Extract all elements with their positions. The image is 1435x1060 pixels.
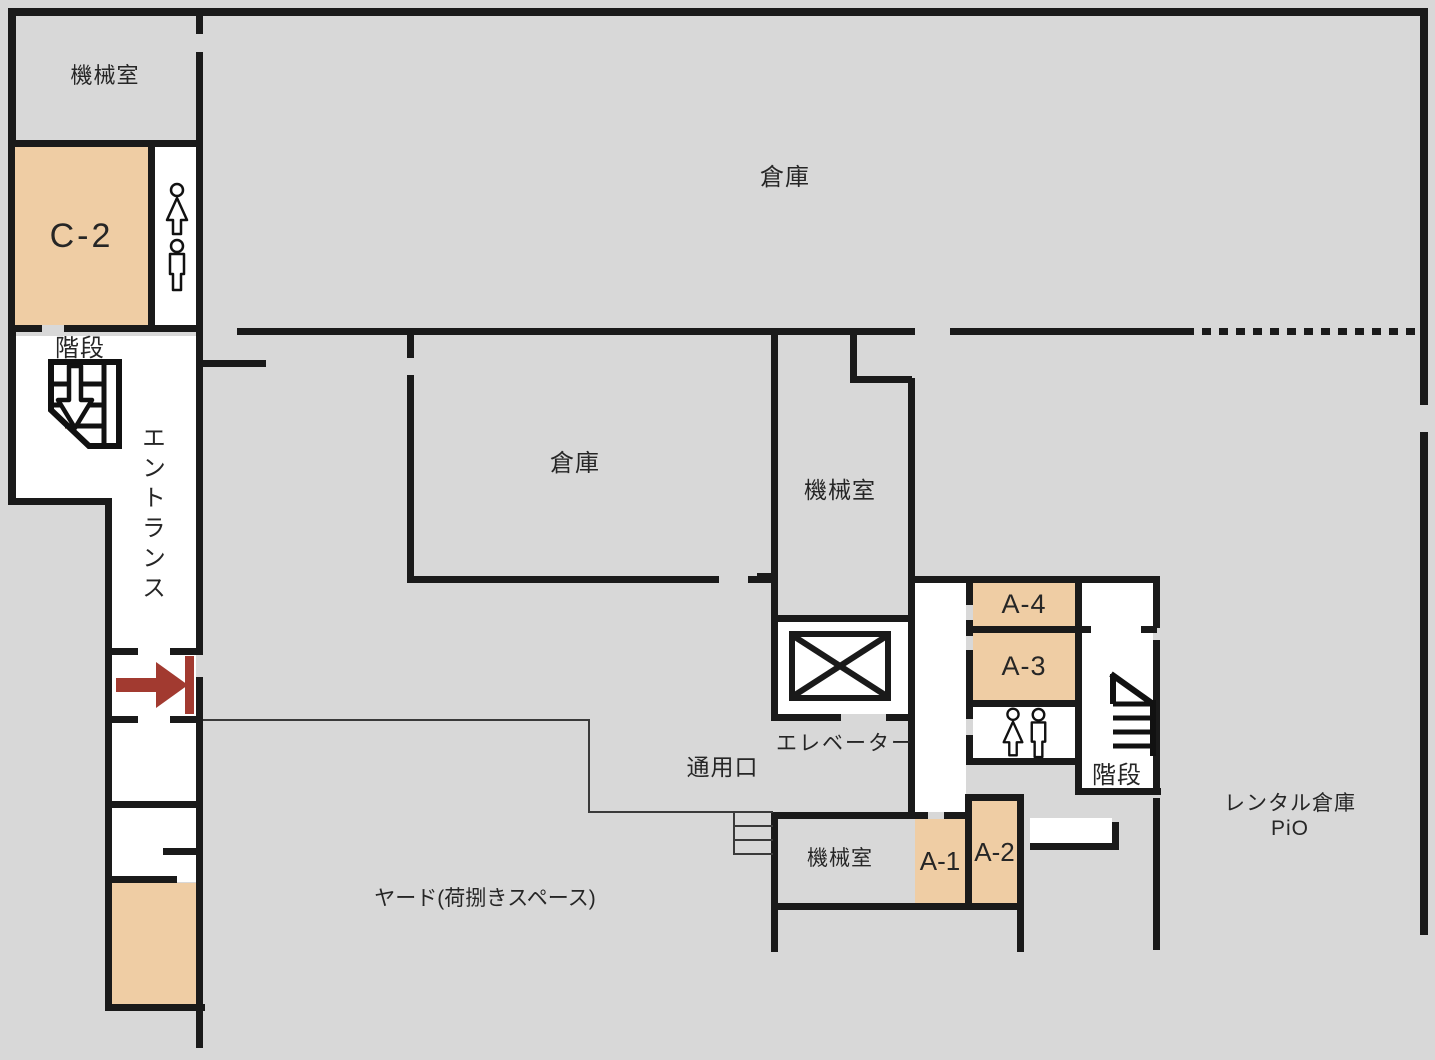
label-machine-room-top-left: 機械室 [35,58,175,90]
label-stairs-top-left: 階段 [42,332,118,358]
wall-segment [196,677,203,1048]
elevator-shaft [789,631,891,701]
wall-segment [966,626,1078,633]
wall-segment [1153,576,1160,628]
room-c2: C-2 [15,147,148,325]
label-service-entrance: 通用口 [655,750,790,780]
thin-line [588,811,736,813]
thin-line [733,839,773,841]
room-a1: A-1 [915,819,965,903]
wall-segment [1420,432,1428,935]
wall-segment [148,140,155,332]
wall-segment [8,8,1428,16]
wall-segment [105,801,112,1011]
wall-segment [886,714,910,721]
wall-segment [966,583,973,605]
wall-segment [771,903,1024,910]
wall-segment [105,716,138,723]
wall-segment [965,794,1023,801]
wall-segment [196,335,203,652]
woman-icon [999,704,1027,760]
wall-segment [237,328,915,335]
wall-segment [771,615,913,622]
wall-segment [966,650,973,706]
wall-segment [407,335,414,358]
wall-segment [153,325,198,332]
wall-segment [105,1004,205,1011]
wall-segment [1420,8,1428,405]
wall-segment [196,8,203,34]
wall-segment [771,812,778,952]
wall-segment [771,714,841,721]
wall-segment [1141,626,1157,633]
thin-line [733,825,773,827]
room-a3: A-3 [973,633,1075,700]
label-stairs-right: 階段 [1078,758,1156,786]
man-icon [163,238,191,292]
wall-segment [196,360,266,367]
floor-area [915,583,966,812]
wall-segment [965,794,972,910]
label-machine-room-bottom: 機械室 [770,842,910,872]
room-bottom-left [112,883,196,1004]
room-a2: A-2 [972,801,1017,903]
label-elevator: エレベーター [775,728,915,756]
thin-line [733,811,735,855]
wall-segment [105,876,177,883]
wall-segment [850,376,912,383]
floor-plan: C-2 A-4 A-3 A-1 A-2 [0,0,1435,1060]
wall-segment [771,618,778,721]
wall-segment [771,812,913,819]
wall-segment [1030,843,1119,850]
label-warehouse-middle: 倉庫 [505,442,645,478]
entrance-arrow-icon [114,654,198,716]
thin-line [588,719,590,813]
wall-segment [8,325,42,332]
wall-segment [1112,822,1119,848]
label-yard: ヤード(荷捌きスペース) [355,880,615,914]
wall-segment [163,848,198,855]
woman-icon [161,182,193,236]
stairs-icon [1108,670,1156,762]
wall-segment [105,801,200,808]
label-warehouse-top: 倉庫 [715,156,855,192]
label-rental-storage-line1: レンタル倉庫 [1224,791,1356,816]
wall-segment [908,576,1160,583]
label-rental-storage: レンタル倉庫 PiO [1205,786,1375,846]
wall-segment [1017,794,1024,952]
wall-segment [1153,798,1160,950]
thin-line [733,811,773,813]
stairs-down-icon [47,358,123,450]
wall-segment [1075,626,1091,633]
wall-segment [748,576,773,583]
wall-segment [8,498,112,505]
wall-segment [966,707,973,719]
man-icon [1026,706,1051,760]
thin-line [733,853,773,855]
wall-segment [407,576,719,583]
label-rental-storage-line2: PiO [1271,816,1309,841]
elevator-x-icon [795,637,885,695]
floor-area [1030,818,1112,843]
label-machine-room-center: 機械室 [770,472,910,504]
wall-segment [944,812,966,819]
wall-segment [908,812,928,819]
wall-segment [8,140,200,147]
floor-area [155,147,196,325]
room-a4: A-4 [973,583,1075,626]
wall-segment [196,52,203,336]
wall-segment [950,328,1185,335]
thin-line [203,719,590,721]
dotted-wall [1185,328,1420,335]
label-entrance: エントランス [134,420,168,610]
wall-segment [407,375,414,580]
